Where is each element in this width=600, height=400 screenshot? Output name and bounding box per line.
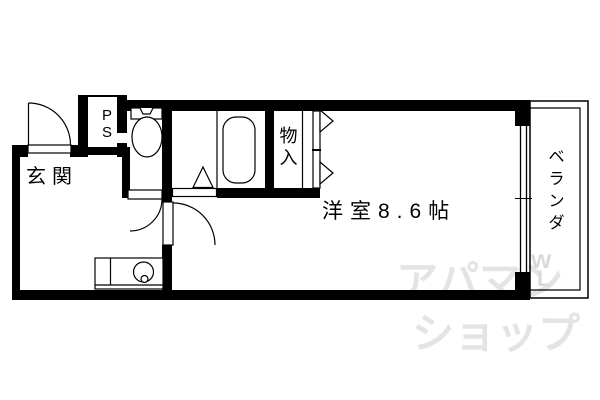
pipe-space-label: PS xyxy=(99,107,115,141)
entry-door-sill xyxy=(28,145,71,153)
closet-door xyxy=(303,110,334,188)
entrance-label: 玄関 xyxy=(26,160,78,189)
wall-window-corner-top xyxy=(515,100,530,126)
wall-outer-left xyxy=(12,145,20,300)
bathroom xyxy=(173,111,256,197)
kitchen-sink-drain xyxy=(141,276,148,283)
closet-door-arrow-top xyxy=(320,110,333,132)
main-room-label: 洋室8.6帖 xyxy=(322,195,456,225)
veranda-label: ベランダ xyxy=(547,147,566,235)
wall-ps-top-edge xyxy=(88,95,117,97)
closet-door-arrow-bottom xyxy=(320,162,333,184)
toilet-door-swing-arc xyxy=(130,199,162,231)
toilet-bowl xyxy=(132,117,162,157)
wall-hall-right-upper xyxy=(162,100,172,202)
bathroom-door-opening xyxy=(173,189,217,197)
wall-window-corner-bottom xyxy=(515,272,530,300)
wall-entry-stub-right xyxy=(70,145,88,157)
hall-room-door-leaf xyxy=(163,202,173,245)
toilet-door xyxy=(128,190,162,231)
floorplan-drawing xyxy=(0,0,600,400)
toilet xyxy=(131,108,162,157)
toilet-door-leaf xyxy=(128,190,162,199)
bathtub xyxy=(223,117,255,183)
storage-label: 物入 xyxy=(278,125,299,169)
hall-room-door xyxy=(163,202,215,245)
wall-bottom xyxy=(12,290,527,300)
floorplan-page: アパマン ショップ w L xyxy=(0,0,600,400)
kitchen-counter xyxy=(95,258,163,289)
entry-door-swing-arc xyxy=(29,103,71,145)
shower-symbol-triangle xyxy=(193,167,213,188)
toilet-tank-notch xyxy=(140,108,153,114)
wall-bath-bottom xyxy=(217,188,320,198)
wall-bath-right xyxy=(265,100,274,190)
hall-room-door-swing-arc xyxy=(173,203,215,245)
entry-door xyxy=(28,103,71,153)
wall-top xyxy=(117,100,530,111)
wall-ps-right-upper xyxy=(117,95,127,133)
